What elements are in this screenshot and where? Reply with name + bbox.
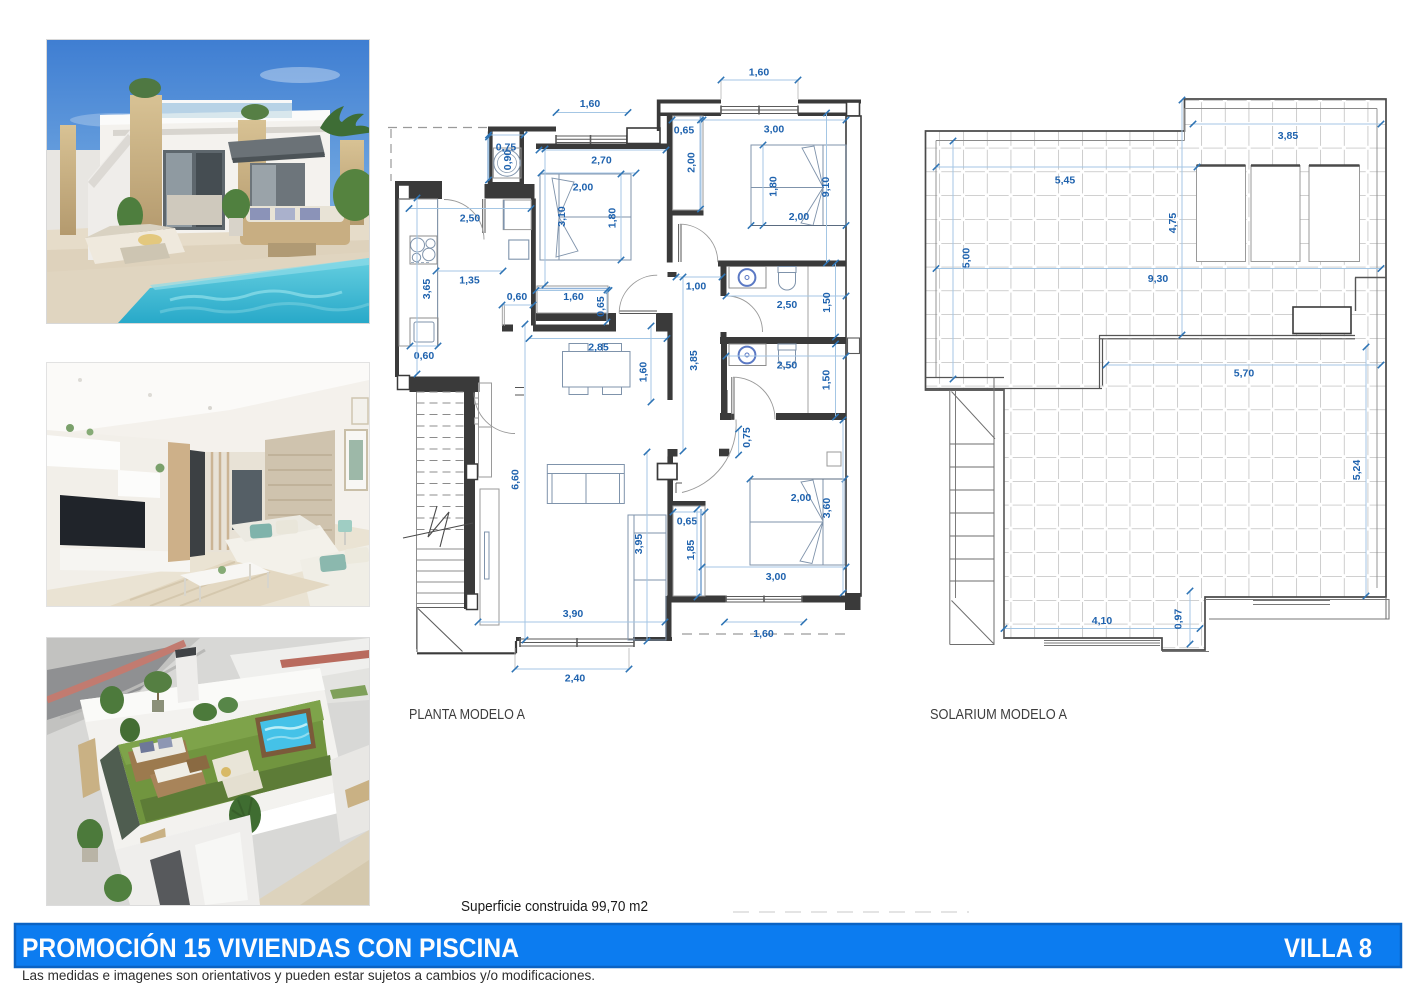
svg-text:2,50: 2,50 xyxy=(777,299,798,311)
svg-text:0,65: 0,65 xyxy=(674,125,695,137)
svg-text:1,60: 1,60 xyxy=(580,98,601,110)
svg-text:2,00: 2,00 xyxy=(789,211,810,223)
svg-text:5,70: 5,70 xyxy=(1234,368,1255,380)
svg-text:4,10: 4,10 xyxy=(1092,615,1113,627)
svg-text:SOLARIUM MODELO A: SOLARIUM MODELO A xyxy=(930,707,1067,723)
svg-text:0,65: 0,65 xyxy=(595,296,607,317)
svg-text:0,60: 0,60 xyxy=(507,291,528,303)
svg-text:2,00: 2,00 xyxy=(791,492,812,504)
svg-text:1,50: 1,50 xyxy=(821,292,833,313)
svg-text:2,40: 2,40 xyxy=(565,673,586,685)
svg-text:PROMOCIÓN 15 VIVIENDAS CON PIS: PROMOCIÓN 15 VIVIENDAS CON PISCINA xyxy=(22,932,519,963)
svg-text:PLANTA MODELO A: PLANTA MODELO A xyxy=(409,707,525,723)
svg-text:3,95: 3,95 xyxy=(633,534,645,555)
svg-text:0,75: 0,75 xyxy=(741,427,753,448)
svg-text:3,00: 3,00 xyxy=(764,124,785,136)
svg-text:0,90: 0,90 xyxy=(502,150,514,171)
svg-text:9,30: 9,30 xyxy=(1148,273,1169,285)
svg-text:1,80: 1,80 xyxy=(607,208,619,229)
svg-text:1,50: 1,50 xyxy=(821,370,833,391)
svg-text:4,75: 4,75 xyxy=(1167,213,1179,234)
svg-text:0,97: 0,97 xyxy=(1173,609,1185,630)
svg-text:3,85: 3,85 xyxy=(1278,130,1299,142)
svg-text:2,00: 2,00 xyxy=(573,182,594,194)
svg-text:3,60: 3,60 xyxy=(821,498,833,519)
svg-text:VILLA 8: VILLA 8 xyxy=(1284,933,1372,963)
svg-text:2,85: 2,85 xyxy=(588,342,609,354)
svg-text:9,10: 9,10 xyxy=(820,177,832,198)
svg-text:3,65: 3,65 xyxy=(421,279,433,300)
svg-text:5,24: 5,24 xyxy=(1351,460,1363,481)
svg-text:3,10: 3,10 xyxy=(556,206,568,227)
svg-text:3,85: 3,85 xyxy=(688,350,700,371)
svg-text:1,00: 1,00 xyxy=(686,281,707,293)
svg-text:3,90: 3,90 xyxy=(563,608,584,620)
svg-text:2,50: 2,50 xyxy=(777,360,798,372)
svg-text:2,00: 2,00 xyxy=(686,152,698,173)
svg-text:1,60: 1,60 xyxy=(753,628,774,640)
svg-text:1,35: 1,35 xyxy=(459,275,480,287)
svg-text:0,65: 0,65 xyxy=(677,516,698,528)
svg-text:5,00: 5,00 xyxy=(961,248,973,269)
svg-text:Superficie construida 99,70 m2: Superficie construida 99,70 m2 xyxy=(461,899,648,915)
svg-text:2,70: 2,70 xyxy=(591,155,612,167)
svg-text:3,00: 3,00 xyxy=(766,571,787,583)
svg-text:1,80: 1,80 xyxy=(768,176,780,197)
svg-text:1,60: 1,60 xyxy=(749,67,770,79)
svg-text:6,60: 6,60 xyxy=(510,469,522,490)
svg-text:2,50: 2,50 xyxy=(460,213,481,225)
svg-text:1,60: 1,60 xyxy=(563,291,584,303)
svg-text:Las medidas e imagenes son ori: Las medidas e imagenes son orientativos … xyxy=(22,968,595,983)
svg-text:1,60: 1,60 xyxy=(638,362,650,383)
svg-text:5,45: 5,45 xyxy=(1055,175,1076,187)
svg-text:1,85: 1,85 xyxy=(685,540,697,561)
